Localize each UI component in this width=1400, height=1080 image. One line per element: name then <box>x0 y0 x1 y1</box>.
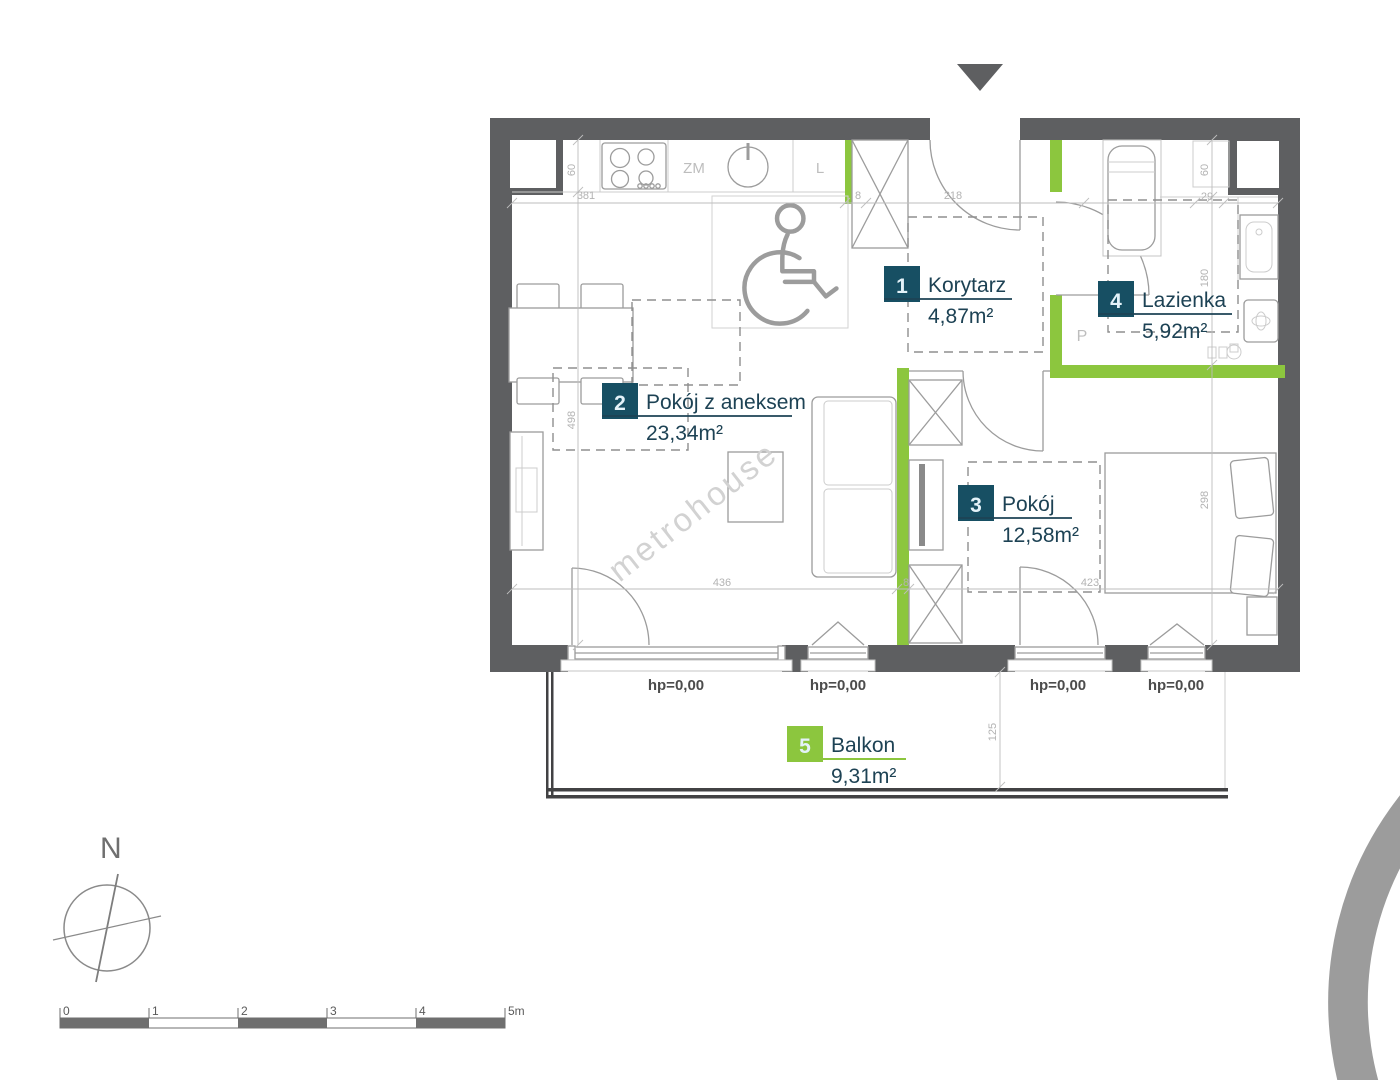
floor-level: hp=0,00 <box>648 677 704 694</box>
accessibility-zone <box>712 196 848 328</box>
room-number: 3 <box>970 494 982 517</box>
room-area: 4,87m² <box>928 305 993 328</box>
sink-icon <box>728 143 768 187</box>
sofa <box>812 397 896 577</box>
washer-label: P <box>1077 328 1088 345</box>
shower <box>1103 140 1161 256</box>
floor-plan: ZM L <box>0 0 1400 1080</box>
entrance-arrow <box>957 64 1003 91</box>
dim-balcony-depth: 125 <box>987 723 999 741</box>
stove-icon <box>602 143 666 189</box>
dim-living-width: 436 <box>713 577 731 589</box>
room-number: 1 <box>896 275 908 298</box>
scale-tick: 1 <box>152 1004 159 1018</box>
room-name: Korytarz <box>928 274 1006 297</box>
scale-tick: 4 <box>419 1004 426 1018</box>
floor-plan-page: ZM L <box>0 0 1400 1080</box>
dim-niche: 29 <box>1201 191 1213 203</box>
room-name: Lazienka <box>1142 289 1226 312</box>
room-label-pokoj: 3 Pokój 12,58m² <box>958 485 1079 547</box>
tv-unit <box>909 460 943 550</box>
dim-kitchen-width: 381 <box>577 190 595 202</box>
floor-level: hp=0,00 <box>810 677 866 694</box>
scale-tick: 2 <box>241 1004 248 1018</box>
dim-bath-niche: 60 <box>1199 164 1211 176</box>
dim-wall-a: 8 <box>855 190 861 202</box>
dining-table <box>509 308 633 382</box>
toilet <box>1244 300 1278 342</box>
scale-tick: 5m <box>508 1004 525 1018</box>
scale-tick: 0 <box>63 1004 70 1018</box>
floor-level-labels: hp=0,00 hp=0,00 hp=0,00 hp=0,00 <box>648 677 1204 694</box>
room-label-pokoj-z-aneksem: 2 Pokój z aneksem 23,34m² <box>602 383 806 445</box>
dim-hall-width: 218 <box>944 190 962 202</box>
dim-bath-height: 180 <box>1199 269 1211 287</box>
room-name: Pokój z aneksem <box>646 391 806 414</box>
room-number: 2 <box>614 392 626 415</box>
compass: N <box>53 832 161 982</box>
scale-bar: 0 1 2 3 4 5m <box>60 1004 525 1028</box>
bedroom-door-arc <box>963 371 1043 451</box>
scale-tick: 3 <box>330 1004 337 1018</box>
window-living <box>801 622 875 671</box>
room-number: 5 <box>799 735 811 758</box>
wheelchair-icon <box>1348 272 1400 1080</box>
zone-kitchen <box>632 300 740 385</box>
balcony-door-living <box>561 568 792 671</box>
window-bedroom <box>1141 624 1212 671</box>
room-area: 12,58m² <box>1002 524 1079 547</box>
dim-bedroom-height: 298 <box>1199 491 1211 509</box>
room-name: Balkon <box>831 734 895 757</box>
room-area: 5,92m² <box>1142 320 1207 343</box>
floor-level: hp=0,00 <box>1148 677 1204 694</box>
room-area: 9,31m² <box>831 765 896 788</box>
nightstand <box>1247 597 1277 635</box>
fridge-label: L <box>816 160 824 177</box>
dim-counter-depth: 60 <box>566 164 578 176</box>
dishwasher-label: ZM <box>683 160 705 177</box>
wheelchair-icon <box>744 205 836 323</box>
north-label: N <box>100 832 122 865</box>
sideboard <box>510 432 543 550</box>
dim-bedroom-width: 423 <box>1081 577 1099 589</box>
room-number: 4 <box>1110 290 1122 313</box>
room-label-balkon: 5 Balkon 9,31m² <box>787 726 906 788</box>
dim-living-height: 498 <box>566 411 578 429</box>
room-label-korytarz: 1 Korytarz 4,87m² <box>884 266 1012 328</box>
floor-level: hp=0,00 <box>1030 677 1086 694</box>
dim-wall-b: 8 <box>903 577 909 589</box>
room-name: Pokój <box>1002 493 1055 516</box>
room-area: 23,34m² <box>646 422 723 445</box>
